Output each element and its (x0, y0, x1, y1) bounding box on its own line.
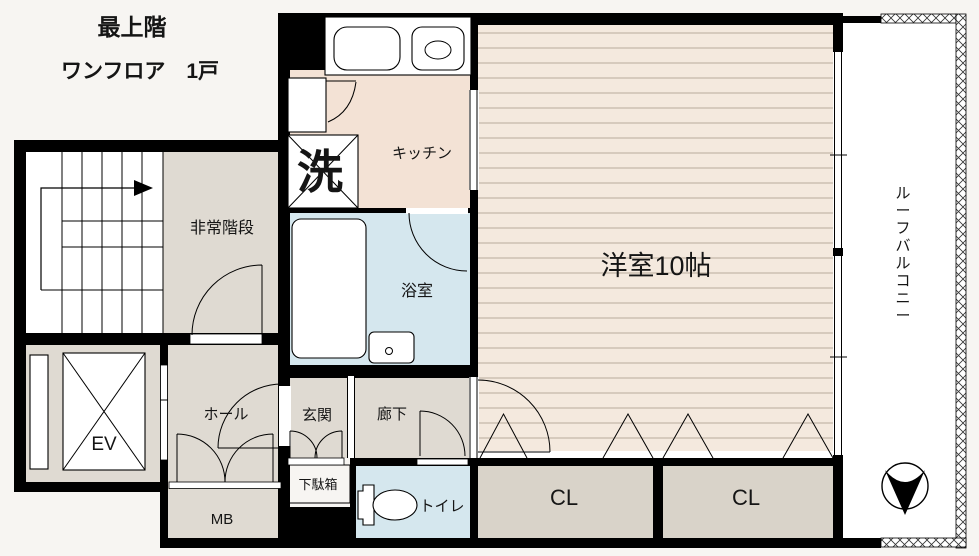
roof-balcony-label: ルーフバルコニー (895, 185, 910, 325)
shoe-cabinet-label: 下駄箱 (298, 477, 337, 492)
toilet-bowl (373, 490, 417, 520)
bathroom-label: 浴室 (401, 282, 433, 300)
western-room (478, 25, 833, 451)
pipe-space-black (287, 507, 350, 538)
elevator-label: EV (91, 434, 117, 455)
entrance-threshold (288, 458, 344, 465)
toilet-threshold (417, 459, 468, 465)
escape-door-threshold (190, 334, 262, 344)
bathtub (292, 219, 366, 358)
western-room-label: 洋室10帖 (600, 251, 711, 281)
kitchen-sink (334, 27, 400, 70)
entrance-label: 玄関 (302, 407, 332, 424)
elevator-fixtures (30, 353, 145, 470)
mb-threshold (169, 482, 281, 489)
kitchen-label: キッチン (392, 145, 452, 162)
entrance-corridor-doorway (347, 376, 355, 458)
washer-label: 洗 (297, 146, 343, 198)
closet2-label: CL (732, 485, 760, 510)
hall-entrance-doorway (279, 386, 291, 446)
bathroom-doorway (406, 208, 468, 214)
meter-box-label: MB (211, 511, 234, 528)
corridor-room (355, 378, 470, 458)
window-mullion (833, 248, 843, 256)
closet1-label: CL (550, 485, 578, 510)
floorplan-svg: 最上階 ワンフロア 1戸 非常階段 キッチン 洗 浴室 洋室10帖 ルーフバルコ… (0, 0, 979, 556)
toilet-tank (358, 485, 374, 525)
title-top-floor: 最上階 (98, 14, 167, 40)
hall-label: ホール (203, 406, 248, 423)
emergency-stairs-label: 非常階段 (190, 219, 254, 237)
bath-sink (369, 332, 414, 363)
corridor-label: 廊下 (377, 406, 407, 423)
kitchen-storage (288, 78, 326, 132)
ev-hall-slider (161, 365, 168, 460)
ev-duct (30, 355, 48, 469)
kitchen-stove (412, 27, 464, 70)
emergency-stairs-room (163, 152, 278, 333)
kitchen-black-space (288, 18, 325, 70)
floorplan: 最上階 ワンフロア 1戸 非常階段 キッチン 洗 浴室 洋室10帖 ルーフバルコ… (0, 0, 979, 556)
toilet-label: トイレ (419, 498, 464, 515)
title-one-floor-unit: ワンフロア 1戸 (61, 60, 219, 83)
